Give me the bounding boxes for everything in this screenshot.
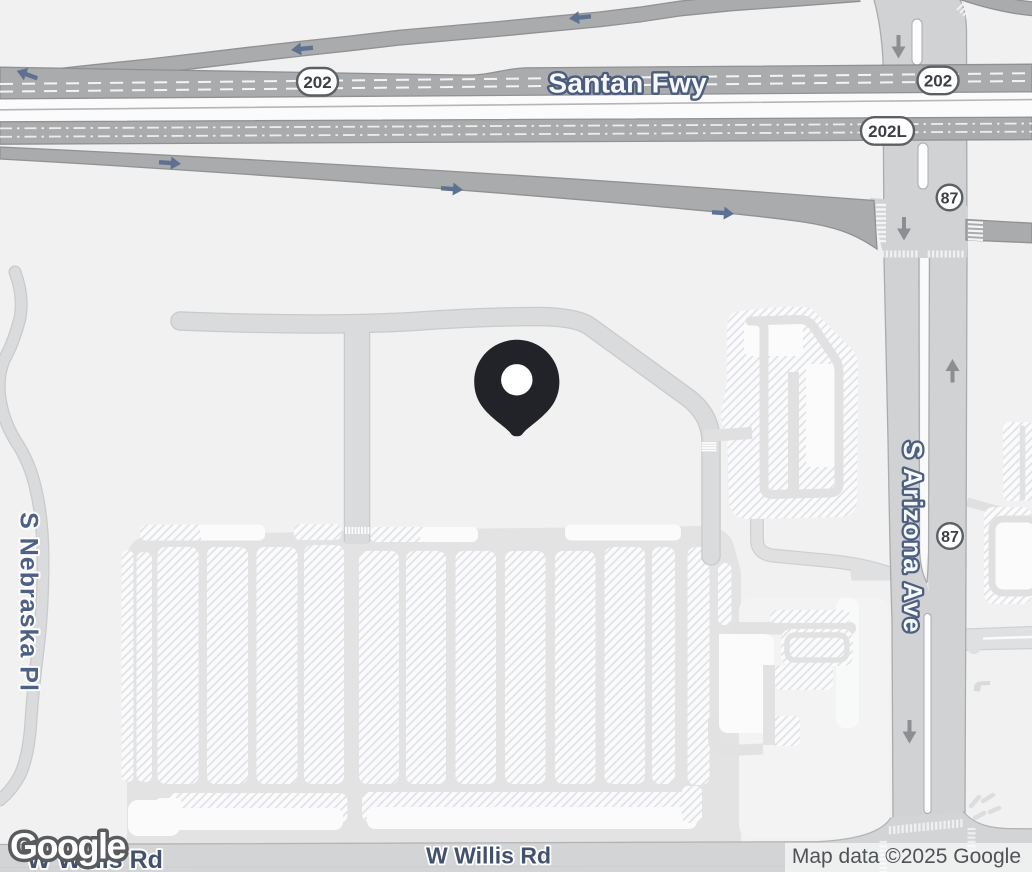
svg-text:202: 202 bbox=[303, 73, 331, 92]
svg-text:W Willis Rd: W Willis Rd bbox=[426, 843, 551, 869]
svg-text:202L: 202L bbox=[868, 122, 907, 141]
svg-text:Map data ©2025 Google: Map data ©2025 Google bbox=[792, 845, 1021, 868]
svg-text:87: 87 bbox=[941, 529, 959, 546]
svg-text:Google: Google bbox=[10, 826, 125, 867]
svg-text:Santan Fwy: Santan Fwy bbox=[548, 67, 707, 98]
svg-text:202: 202 bbox=[924, 72, 952, 91]
svg-text:87: 87 bbox=[941, 191, 959, 208]
svg-text:S Nebraska Pl: S Nebraska Pl bbox=[15, 512, 43, 692]
svg-text:S Arizona Ave: S Arizona Ave bbox=[898, 441, 928, 634]
